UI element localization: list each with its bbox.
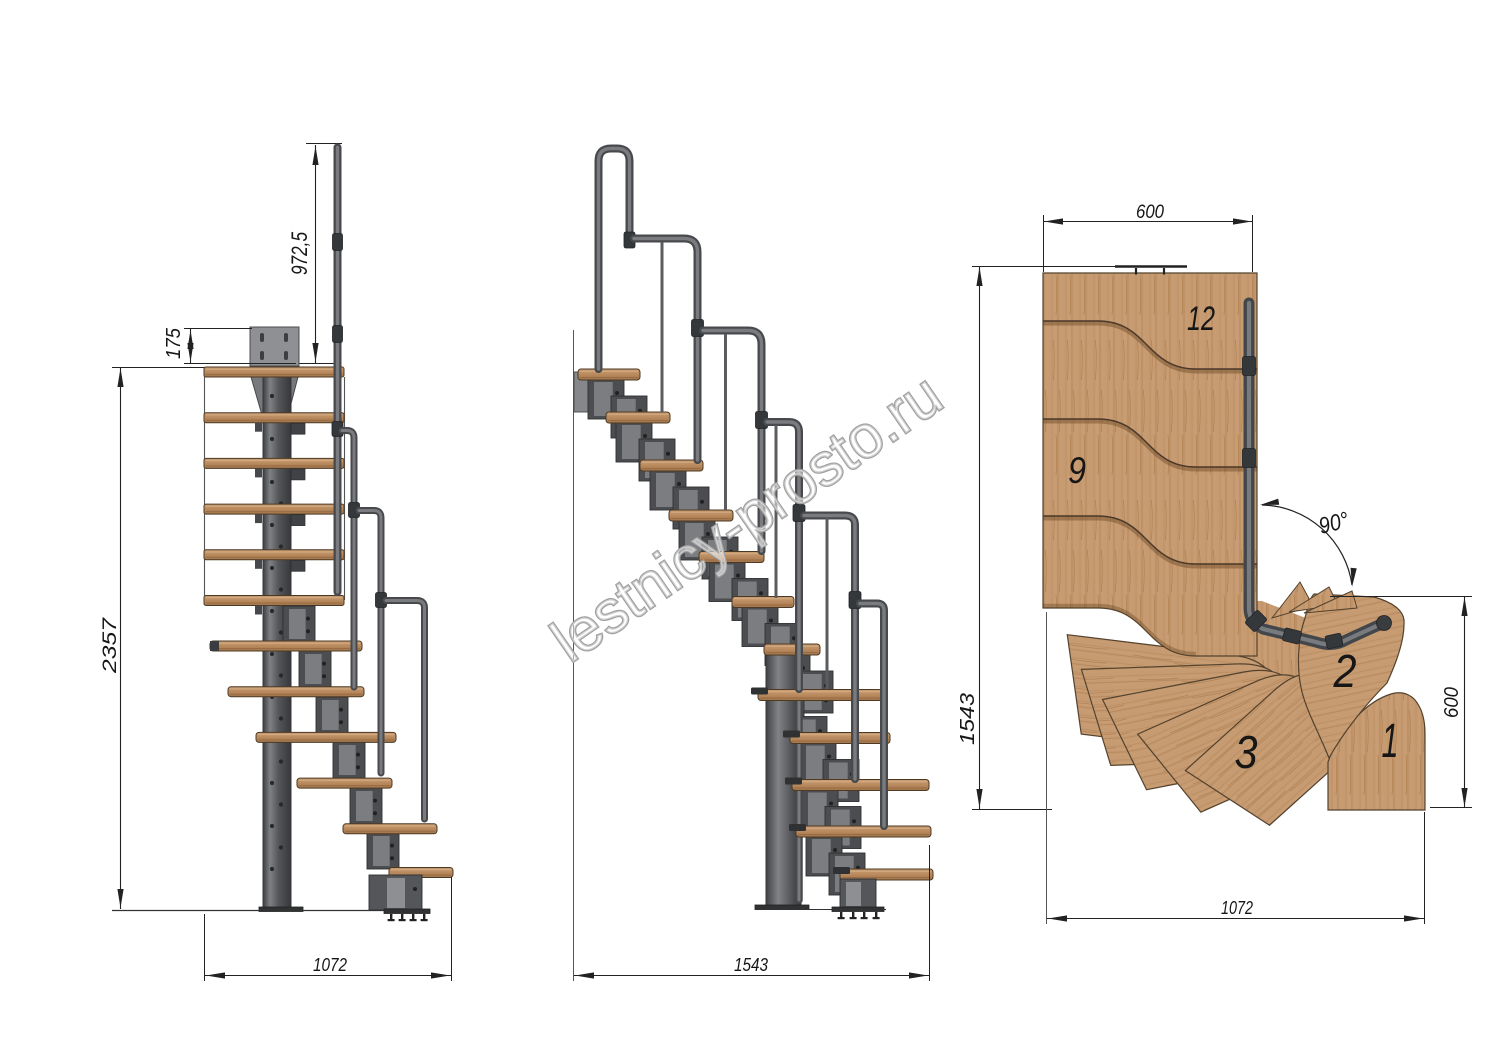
svg-text:2: 2 xyxy=(1333,645,1357,697)
svg-text:972,5: 972,5 xyxy=(287,231,312,275)
svg-text:90°: 90° xyxy=(1316,506,1351,538)
svg-text:1543: 1543 xyxy=(734,954,769,975)
svg-text:2357: 2357 xyxy=(100,616,121,674)
svg-text:1: 1 xyxy=(1382,715,1399,768)
svg-text:175: 175 xyxy=(163,327,185,359)
svg-text:600: 600 xyxy=(1136,202,1164,223)
svg-text:600: 600 xyxy=(1441,687,1463,718)
svg-text:1543: 1543 xyxy=(957,693,979,745)
svg-text:9: 9 xyxy=(1068,450,1086,491)
svg-text:1072: 1072 xyxy=(1221,897,1254,918)
svg-text:12: 12 xyxy=(1187,300,1215,338)
svg-text:1072: 1072 xyxy=(313,954,348,975)
svg-text:3: 3 xyxy=(1235,726,1258,778)
